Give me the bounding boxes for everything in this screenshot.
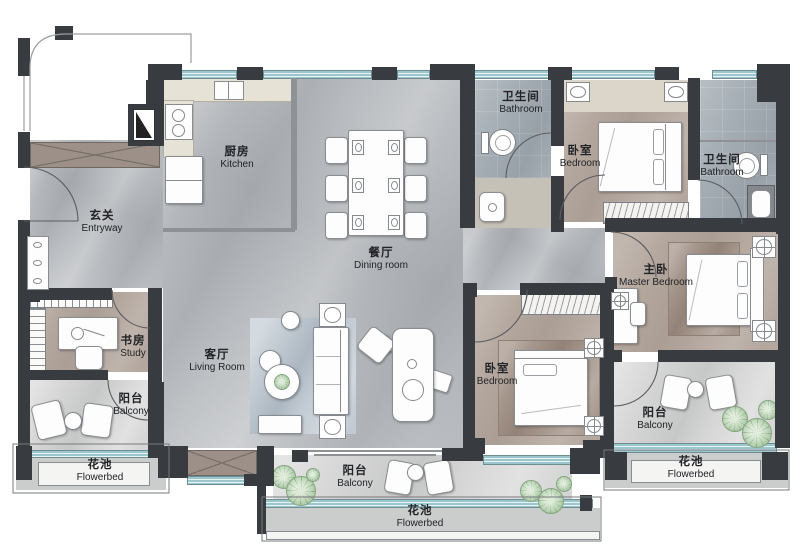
place-setting xyxy=(352,140,364,155)
dining-chair xyxy=(325,212,348,239)
window xyxy=(180,70,237,79)
label-zh: 卫生间 xyxy=(700,154,743,167)
burner-icon xyxy=(172,109,185,122)
wall xyxy=(18,132,30,168)
desk-lamp-icon xyxy=(71,327,84,340)
label-zh: 厨房 xyxy=(220,146,253,159)
label-en: Balcony xyxy=(637,420,673,431)
side-table xyxy=(319,303,346,327)
nightstand xyxy=(752,236,776,258)
flowerbed-left-label: 花池 Flowerbed xyxy=(77,459,124,483)
plant xyxy=(538,488,564,514)
wall xyxy=(257,486,266,534)
window xyxy=(712,70,757,79)
pillow xyxy=(737,261,748,287)
desk-lamp-arm xyxy=(83,329,104,337)
label-en: Flowerbed xyxy=(397,518,444,529)
pillow xyxy=(653,129,664,155)
dining-chair xyxy=(404,175,427,202)
bedroom-bottom-label: 卧室 Bedroom xyxy=(477,363,518,387)
glass-partition xyxy=(291,78,297,230)
wall xyxy=(55,26,73,40)
label-zh: 阳台 xyxy=(113,393,149,406)
shoe-cabinet xyxy=(27,236,49,290)
drain-icon xyxy=(488,203,497,212)
bedroom-top-label: 卧室 Bedroom xyxy=(560,145,601,169)
label-zh: 卧室 xyxy=(477,363,518,376)
nightstand xyxy=(584,338,604,358)
bed xyxy=(514,358,588,426)
desk-lamp xyxy=(611,292,629,310)
dining-chair xyxy=(404,212,427,239)
pillow xyxy=(523,364,557,376)
bathroom-right-label: 卫生间 Bathroom xyxy=(700,154,743,178)
burner-icon xyxy=(172,124,185,137)
label-en: Master Bedroom xyxy=(619,277,693,288)
label-zh: 书房 xyxy=(120,335,146,348)
coffee-table xyxy=(264,364,300,400)
wall xyxy=(688,78,700,180)
wall xyxy=(580,495,592,511)
wall xyxy=(16,446,32,480)
wall xyxy=(776,100,790,234)
nightstand xyxy=(752,320,776,342)
sofa-cushion-line xyxy=(316,356,340,357)
fridge xyxy=(165,156,203,204)
kitchen-label: 厨房 Kitchen xyxy=(220,146,253,170)
shoe-icon xyxy=(33,242,42,248)
label-en: Flowerbed xyxy=(77,472,124,483)
balcony-table xyxy=(64,412,82,430)
hallway-floor xyxy=(463,228,605,290)
label-en: Bathroom xyxy=(700,167,743,178)
window xyxy=(397,70,430,79)
place-setting xyxy=(352,178,364,193)
wall xyxy=(605,218,790,232)
master-bed xyxy=(686,254,752,326)
dining-chair xyxy=(325,137,348,164)
wall xyxy=(148,288,162,382)
label-en: Bedroom xyxy=(477,376,518,387)
wall xyxy=(551,176,564,232)
nightstand xyxy=(566,82,590,102)
wall xyxy=(244,474,258,486)
dining-chair xyxy=(404,137,427,164)
place-setting xyxy=(352,215,364,230)
window xyxy=(263,70,372,79)
wall xyxy=(460,78,475,180)
wall xyxy=(460,180,475,228)
shower-divider xyxy=(700,140,776,142)
side-table xyxy=(319,415,346,439)
table-plant xyxy=(274,374,290,390)
label-zh: 卧室 xyxy=(560,145,601,158)
tv-bench xyxy=(258,415,302,434)
label-en: Living Room xyxy=(189,362,245,373)
label-zh: 花池 xyxy=(668,456,715,469)
window xyxy=(187,476,245,485)
wall xyxy=(463,285,475,443)
flowerbed-center-inner xyxy=(266,531,600,540)
wall xyxy=(158,446,188,478)
glass-partition xyxy=(163,228,295,232)
bathroom-sink xyxy=(479,192,505,222)
label-zh: 花池 xyxy=(397,505,444,518)
floor-plan: 玄关 Entryway 厨房 Kitchen 餐厅 Dining room 客厅… xyxy=(0,0,800,544)
console-decor xyxy=(407,359,417,369)
wall xyxy=(257,446,274,486)
sliding-door xyxy=(308,450,442,452)
blanket-fold xyxy=(600,128,615,186)
sofa xyxy=(313,327,349,415)
study-label: 书房 Study xyxy=(120,335,146,359)
shoe-icon xyxy=(33,278,42,284)
label-en: Flowerbed xyxy=(668,469,715,480)
balcony-chair xyxy=(422,459,454,496)
bathroom-sink xyxy=(751,190,771,218)
label-zh: 阳台 xyxy=(637,407,673,420)
wall xyxy=(762,452,788,480)
place-setting xyxy=(388,215,400,230)
balcony-table xyxy=(687,381,704,398)
label-en: Study xyxy=(120,348,146,359)
nightstand xyxy=(584,416,604,436)
wall xyxy=(463,438,485,454)
fridge-line xyxy=(166,180,202,181)
sink-divider xyxy=(228,82,229,99)
label-en: Kitchen xyxy=(220,159,253,170)
plant xyxy=(306,468,320,482)
label-zh: 玄关 xyxy=(81,210,122,223)
balcony-table xyxy=(407,464,424,481)
label-zh: 客厅 xyxy=(189,349,245,362)
wall xyxy=(18,370,30,452)
shoe-icon xyxy=(33,260,42,266)
place-setting xyxy=(388,140,400,155)
sofa-cushion-line xyxy=(316,384,340,385)
wall xyxy=(520,283,605,295)
wall xyxy=(18,38,30,76)
sofa-back-line xyxy=(340,330,341,412)
wall xyxy=(778,232,790,356)
balcony-left-label: 阳台 Balcony xyxy=(113,393,149,417)
plant xyxy=(556,476,572,492)
label-en: Entryway xyxy=(81,223,122,234)
stool xyxy=(281,311,300,330)
label-en: Dining room xyxy=(354,260,408,271)
wardrobe xyxy=(521,293,601,315)
wall xyxy=(551,78,564,146)
wall xyxy=(658,350,780,362)
entryway-label: 玄关 Entryway xyxy=(81,210,122,234)
label-zh: 主卧 xyxy=(619,264,693,277)
place-setting xyxy=(388,178,400,193)
master-bedroom-label: 主卧 Master Bedroom xyxy=(619,264,693,288)
blanket-fold xyxy=(521,405,581,414)
desk-chair xyxy=(630,302,646,326)
pillow xyxy=(653,159,664,185)
flowerbed-right-label: 花池 Flowerbed xyxy=(668,456,715,480)
sliding-door xyxy=(314,454,436,456)
label-en: Bedroom xyxy=(560,158,601,169)
wall xyxy=(18,370,108,380)
balcony-right-label: 阳台 Balcony xyxy=(637,407,673,431)
label-zh: 餐厅 xyxy=(354,247,408,260)
kitchen-sink xyxy=(214,81,244,100)
toilet-tank xyxy=(760,154,768,176)
stove xyxy=(165,104,193,140)
label-en: Bathroom xyxy=(499,104,542,115)
pillow xyxy=(737,293,748,319)
wall xyxy=(757,64,790,102)
dining-chair xyxy=(325,175,348,202)
wall xyxy=(292,450,308,462)
console-table xyxy=(392,328,434,422)
balcony-center-label: 阳台 Balcony xyxy=(337,465,373,489)
wall xyxy=(775,354,790,448)
window xyxy=(483,455,571,465)
plant xyxy=(742,418,772,448)
console-decor xyxy=(402,379,424,401)
label-zh: 花池 xyxy=(77,459,124,472)
window xyxy=(570,70,655,79)
headboard-line xyxy=(665,124,666,190)
wall xyxy=(237,67,263,80)
wall xyxy=(372,67,397,80)
toilet-icon xyxy=(489,129,516,156)
flowerbed-center-label: 花池 Flowerbed xyxy=(397,505,444,529)
label-zh: 阳台 xyxy=(337,465,373,478)
wall xyxy=(655,67,679,80)
bookshelf xyxy=(29,308,46,374)
vent-shaft-inner xyxy=(133,109,155,141)
toilet-tank xyxy=(481,132,489,154)
label-en: Balcony xyxy=(113,406,149,417)
bathroom-top-label: 卫生间 Bathroom xyxy=(499,91,542,115)
nightstand xyxy=(664,82,688,102)
living-room-label: 客厅 Living Room xyxy=(189,349,245,373)
window xyxy=(473,70,550,79)
wall xyxy=(605,452,627,480)
label-en: Balcony xyxy=(337,478,373,489)
wall xyxy=(148,64,182,80)
label-zh: 卫生间 xyxy=(499,91,542,104)
balcony-chair xyxy=(80,402,114,439)
desk-chair xyxy=(75,346,103,370)
wall xyxy=(583,440,611,456)
wall xyxy=(612,350,622,362)
door-panel xyxy=(187,450,257,476)
flowerbed-left-edge xyxy=(20,450,160,458)
bed xyxy=(598,122,682,192)
dining-room-label: 餐厅 Dining room xyxy=(354,247,408,271)
